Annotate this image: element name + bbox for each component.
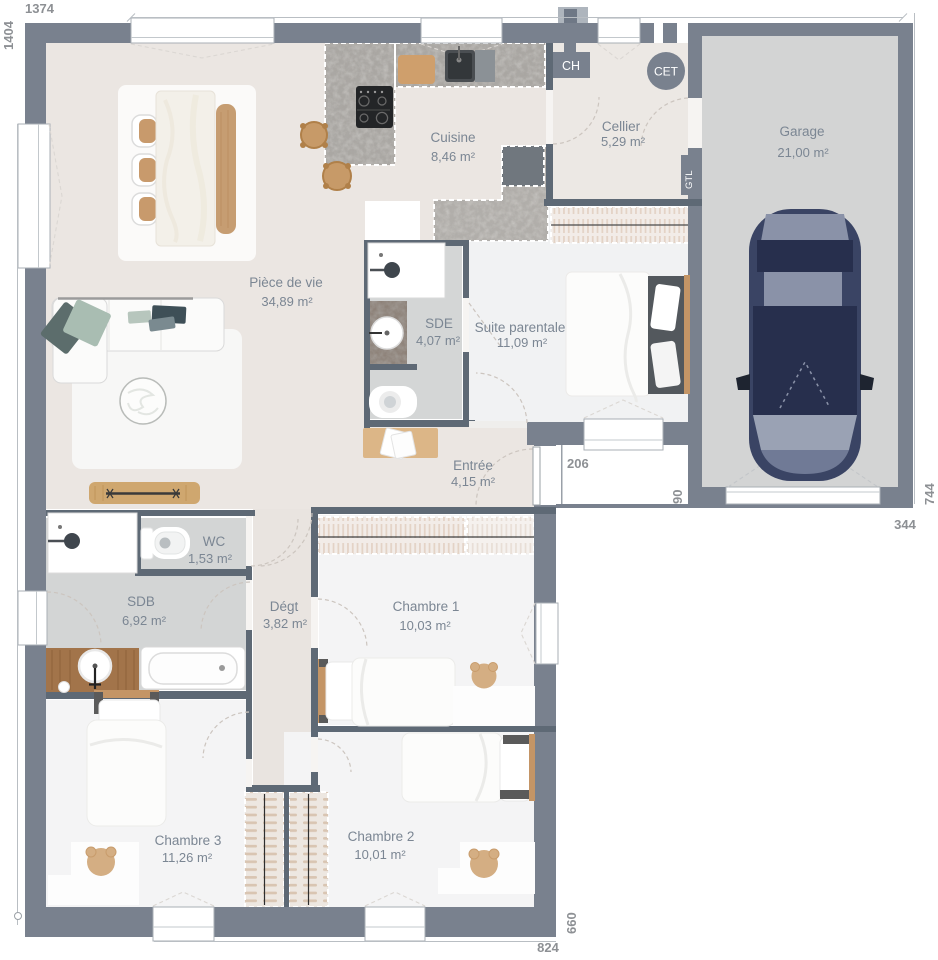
svg-text:1,53 m²: 1,53 m² [188, 551, 233, 566]
svg-text:11,26 m²: 11,26 m² [162, 850, 213, 865]
svg-text:1404: 1404 [1, 20, 16, 50]
svg-text:660: 660 [564, 912, 579, 934]
svg-text:34,89 m²: 34,89 m² [261, 294, 313, 309]
svg-text:Chambre 1: Chambre 1 [393, 599, 460, 614]
svg-text:8,46 m²: 8,46 m² [431, 149, 476, 164]
svg-text:CH: CH [562, 59, 580, 73]
svg-text:5,29 m²: 5,29 m² [601, 134, 646, 149]
svg-text:1374: 1374 [25, 1, 55, 16]
svg-text:Chambre 2: Chambre 2 [348, 829, 415, 844]
svg-text:WC: WC [203, 534, 226, 549]
svg-text:Garage: Garage [779, 124, 824, 139]
svg-text:SDB: SDB [127, 594, 155, 609]
svg-text:Cellier: Cellier [602, 119, 641, 134]
svg-text:90: 90 [670, 490, 685, 504]
svg-text:Suite parentale: Suite parentale [475, 320, 566, 335]
svg-text:10,01 m²: 10,01 m² [354, 847, 406, 862]
svg-text:4,15 m²: 4,15 m² [451, 474, 496, 489]
svg-text:Cuisine: Cuisine [430, 130, 475, 145]
svg-text:Pièce de vie: Pièce de vie [249, 275, 323, 290]
svg-text:3,82 m²: 3,82 m² [263, 616, 308, 631]
svg-text:10,03 m²: 10,03 m² [399, 618, 451, 633]
svg-text:206: 206 [567, 456, 589, 471]
svg-text:Entrée: Entrée [453, 458, 493, 473]
svg-text:824: 824 [537, 940, 559, 955]
svg-text:6,92 m²: 6,92 m² [122, 613, 167, 628]
svg-text:SDE: SDE [425, 316, 453, 331]
svg-text:GTL: GTL [684, 171, 695, 189]
svg-text:Dégt: Dégt [270, 599, 299, 614]
svg-text:744: 744 [922, 483, 937, 505]
svg-text:Chambre 3: Chambre 3 [155, 833, 222, 848]
svg-text:21,00 m²: 21,00 m² [777, 145, 829, 160]
svg-text:4,07 m²: 4,07 m² [416, 333, 461, 348]
svg-text:CET: CET [654, 65, 679, 79]
svg-text:11,09 m²: 11,09 m² [497, 335, 548, 350]
svg-text:344: 344 [894, 517, 916, 532]
